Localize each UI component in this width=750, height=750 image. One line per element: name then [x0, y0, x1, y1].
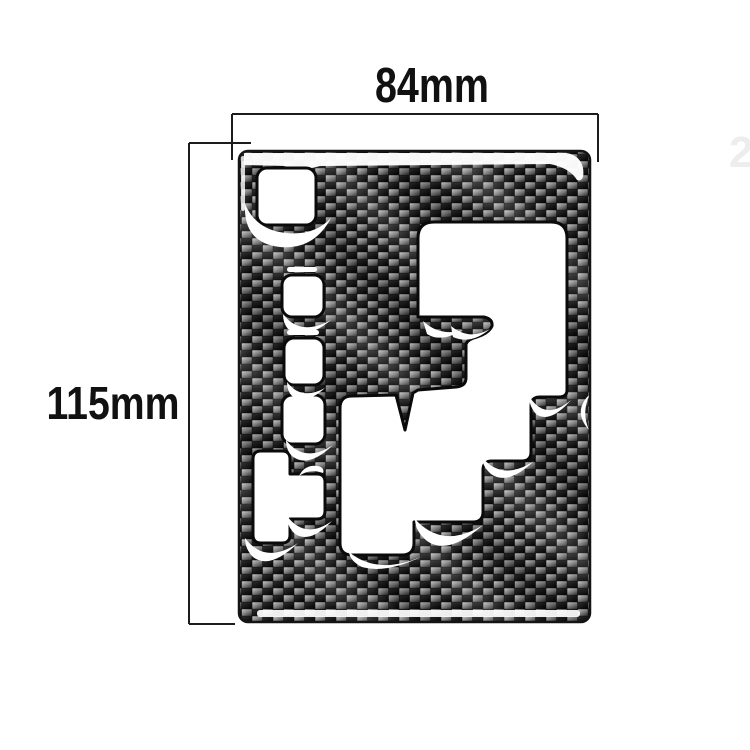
svg-text:2: 2 [729, 128, 750, 177]
svg-text:115mm: 115mm [47, 377, 180, 429]
svg-text:84mm: 84mm [375, 59, 489, 113]
